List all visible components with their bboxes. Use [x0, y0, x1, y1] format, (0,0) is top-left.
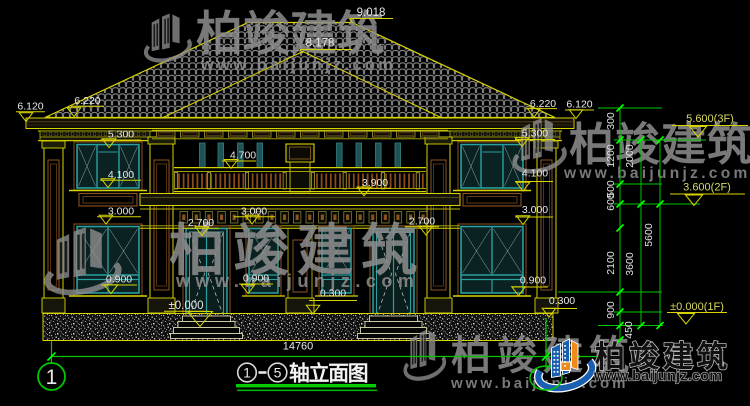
- svg-text:300: 300: [605, 112, 617, 130]
- svg-text:3.000: 3.000: [522, 204, 548, 216]
- svg-text:±0.000(1F): ±0.000(1F): [670, 301, 724, 313]
- svg-text:www.baijunjz.com: www.baijunjz.com: [563, 165, 750, 182]
- svg-text:5600: 5600: [643, 223, 655, 247]
- svg-text:4.700: 4.700: [230, 150, 256, 162]
- svg-text:3.000: 3.000: [108, 206, 134, 218]
- svg-text:2.700: 2.700: [188, 217, 214, 229]
- svg-text:0.900: 0.900: [106, 274, 132, 286]
- svg-text:6.120: 6.120: [566, 99, 592, 111]
- svg-text:1: 1: [243, 365, 251, 381]
- svg-text:4.100: 4.100: [108, 169, 134, 181]
- svg-text:5.300: 5.300: [108, 129, 134, 141]
- svg-text:0.300: 0.300: [549, 295, 575, 307]
- svg-text:www.baijunjz.com: www.baijunjz.com: [593, 369, 722, 385]
- svg-text:6.220: 6.220: [530, 98, 556, 110]
- svg-text:2000: 2000: [624, 144, 636, 168]
- svg-text:2100: 2100: [605, 251, 617, 275]
- svg-text:14760: 14760: [283, 341, 314, 353]
- svg-text:9.018: 9.018: [357, 7, 386, 19]
- svg-text:600: 600: [605, 193, 617, 211]
- svg-text:3600: 3600: [624, 252, 636, 276]
- svg-text:6.220: 6.220: [74, 95, 100, 107]
- svg-text:0.900: 0.900: [243, 273, 269, 285]
- svg-text:450: 450: [623, 321, 635, 339]
- svg-text:0.300: 0.300: [320, 288, 346, 300]
- svg-text:www.baijunjz.com: www.baijunjz.com: [175, 271, 419, 291]
- svg-text:2.700: 2.700: [409, 216, 435, 228]
- svg-text:3.000: 3.000: [241, 206, 267, 218]
- svg-text:3.600(2F): 3.600(2F): [683, 182, 731, 194]
- svg-text:轴立面图: 轴立面图: [289, 362, 368, 386]
- svg-text:1: 1: [46, 366, 58, 389]
- svg-text:5: 5: [274, 365, 282, 381]
- svg-text:±0.000: ±0.000: [168, 300, 203, 312]
- svg-text:6.120: 6.120: [17, 101, 43, 113]
- svg-text:0.900: 0.900: [520, 275, 546, 287]
- svg-text:www.baijunjz.com: www.baijunjz.com: [200, 56, 396, 74]
- svg-text:4.100: 4.100: [522, 168, 548, 180]
- svg-text:5.600(3F): 5.600(3F): [686, 113, 734, 125]
- svg-text:3.900: 3.900: [362, 177, 388, 189]
- svg-text:8.178: 8.178: [306, 38, 335, 50]
- svg-text:900: 900: [605, 301, 617, 319]
- svg-text:5.300: 5.300: [522, 128, 548, 140]
- svg-text:1200: 1200: [605, 144, 617, 168]
